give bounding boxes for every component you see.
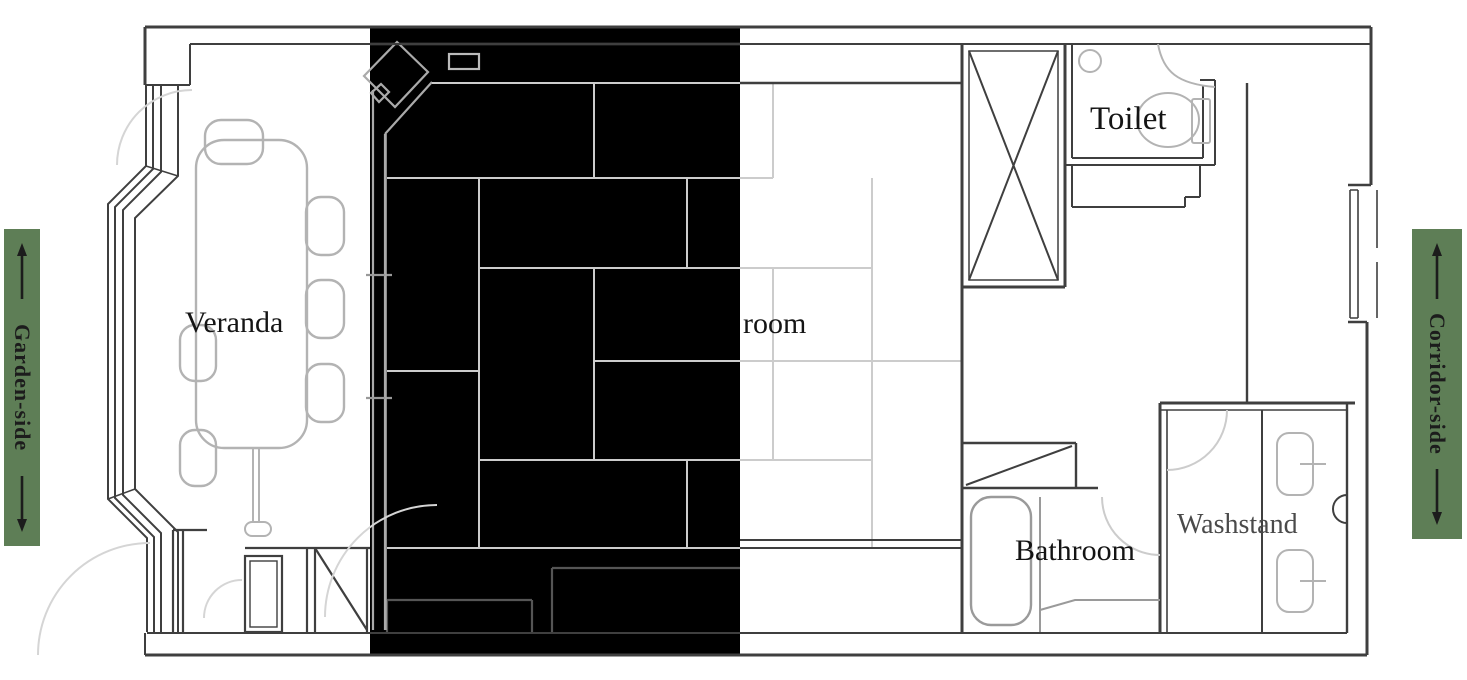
floor-plan: Veranda room Toilet Bathroom Washstand G… — [0, 0, 1467, 680]
down-arrow-icon — [16, 476, 28, 532]
bathtub — [971, 497, 1160, 632]
down-arrow-icon — [1431, 469, 1443, 525]
highlighted-room-overlay — [370, 28, 740, 655]
bathroom-room — [962, 443, 1098, 488]
washstand-room — [1160, 403, 1355, 633]
up-arrow-icon — [16, 243, 28, 299]
walls — [145, 27, 1371, 655]
garden-side-label: Garden-side — [9, 324, 35, 451]
bottom-left-closets — [173, 530, 370, 632]
corridor-side-banner: Corridor-side — [1412, 229, 1462, 539]
room-south-wall — [740, 540, 962, 548]
bay-window — [108, 85, 178, 632]
toilet-fixtures — [1079, 44, 1215, 147]
closet-x — [962, 44, 1065, 632]
garden-side-banner: Garden-side — [4, 229, 40, 546]
veranda-table-chairs — [180, 120, 344, 536]
washstand-sinks — [1277, 433, 1326, 612]
up-arrow-icon — [1431, 243, 1443, 299]
corridor-side-label: Corridor-side — [1424, 313, 1450, 455]
floor-plan-drawing — [0, 0, 1467, 680]
